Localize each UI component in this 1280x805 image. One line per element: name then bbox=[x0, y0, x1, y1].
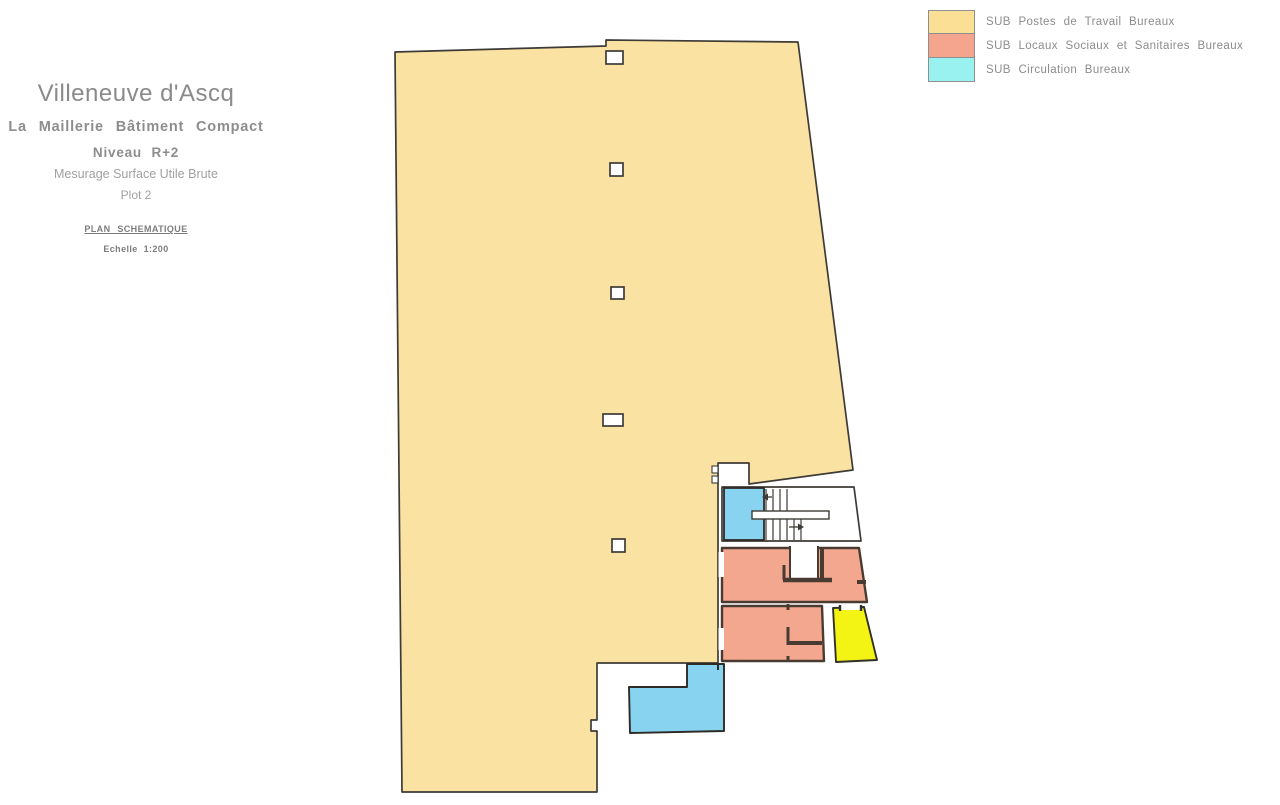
floor-plan-page: { "title_block": { "city": "Villeneuve d… bbox=[0, 0, 1280, 805]
column bbox=[611, 287, 624, 299]
highlighted-room bbox=[833, 607, 877, 662]
sanitary-room-lower bbox=[722, 606, 824, 661]
wall-notch bbox=[712, 476, 718, 483]
circulation-lower bbox=[629, 664, 724, 733]
wall-notch bbox=[712, 466, 718, 473]
column bbox=[610, 163, 623, 176]
door-opening bbox=[719, 628, 725, 650]
column bbox=[606, 51, 623, 64]
column bbox=[603, 414, 623, 426]
floor-plan-canvas bbox=[0, 0, 1280, 805]
shaft bbox=[790, 544, 818, 578]
door-opening bbox=[841, 604, 861, 610]
stair-landing bbox=[752, 511, 829, 519]
column bbox=[612, 539, 625, 552]
door-opening bbox=[719, 552, 725, 577]
main-office-area bbox=[395, 40, 853, 792]
